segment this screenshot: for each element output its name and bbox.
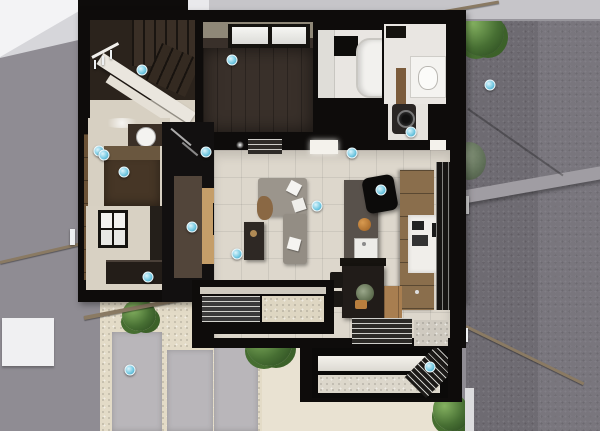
light-marker-icon[interactable]	[312, 201, 323, 212]
ceiling-light-box	[430, 140, 446, 150]
light-marker-icon[interactable]	[119, 167, 130, 178]
island-bowl	[358, 218, 371, 231]
bedroom-window-pane	[232, 27, 268, 44]
stair-baluster	[102, 56, 104, 65]
light-marker-icon[interactable]	[99, 150, 110, 161]
bottom-walkway	[300, 402, 445, 431]
sunroom-louver-upper	[352, 318, 412, 344]
room-laundry	[384, 24, 446, 104]
light-marker-icon[interactable]	[201, 147, 212, 158]
sofa-blanket	[257, 196, 273, 220]
light-marker-icon[interactable]	[347, 148, 358, 159]
pendant-bar	[340, 258, 386, 266]
cabinet-knob	[415, 290, 419, 294]
concrete-slab	[167, 350, 213, 431]
stair-baluster	[110, 50, 112, 59]
light-marker-icon[interactable]	[406, 127, 417, 138]
hall-cabinet-top	[104, 146, 160, 160]
entry-window-pane	[114, 213, 125, 228]
living-ceiling-light	[236, 141, 244, 149]
light-marker-icon[interactable]	[187, 222, 198, 233]
light-marker-icon[interactable]	[232, 249, 243, 260]
room-sunroom	[312, 348, 448, 398]
washer-door	[397, 110, 415, 128]
table-bread-board	[355, 300, 367, 309]
transom-louver	[248, 139, 282, 154]
road-light-half	[538, 14, 600, 431]
bathroom-counter	[318, 30, 335, 98]
bay-gravel-bed	[262, 296, 324, 322]
stair-baluster	[94, 60, 96, 69]
bathroom-window	[334, 36, 358, 56]
bay-sill	[200, 287, 326, 294]
hall-cabinet-body	[104, 160, 160, 210]
white-table	[2, 318, 54, 366]
entry-window-pane	[114, 230, 125, 245]
entry-window-pane	[101, 213, 112, 228]
room-bathroom	[318, 30, 382, 98]
bay-window	[192, 280, 334, 334]
entry-shoe-bench	[106, 260, 166, 284]
bathroom-tub	[356, 38, 382, 98]
counter-appliance	[412, 235, 428, 246]
bay-louver	[202, 296, 260, 322]
room-entry	[86, 206, 168, 290]
island-faucet	[362, 242, 366, 246]
bedroom-window-pane	[272, 27, 306, 44]
concrete-slab	[112, 332, 162, 431]
dining-wood-floor-patch	[384, 286, 402, 318]
light-marker-icon[interactable]	[425, 362, 436, 373]
east-window-strip	[436, 162, 450, 310]
left-handrail-post	[70, 229, 75, 245]
entry-window-pane	[101, 230, 112, 245]
round-washbasin	[136, 127, 156, 147]
bedroom-floor	[203, 48, 313, 132]
light-marker-icon[interactable]	[137, 65, 148, 76]
ceiling-light-box	[310, 140, 338, 154]
sunroom-concrete-patch	[414, 320, 448, 346]
laundry-wood-door	[396, 68, 406, 104]
light-marker-icon[interactable]	[376, 185, 387, 196]
light-marker-icon[interactable]	[125, 365, 136, 376]
laundry-sink	[418, 66, 438, 90]
bottom-white-post	[465, 388, 474, 431]
floorplan-render	[0, 0, 600, 431]
laundry-shelf	[386, 26, 406, 38]
light-marker-icon[interactable]	[485, 80, 496, 91]
coffee-table-item	[250, 230, 257, 237]
light-marker-icon[interactable]	[143, 272, 154, 283]
light-marker-icon[interactable]	[227, 55, 238, 66]
coffee-table	[244, 222, 264, 260]
room-bedroom	[203, 22, 313, 132]
counter-appliance	[412, 221, 424, 230]
